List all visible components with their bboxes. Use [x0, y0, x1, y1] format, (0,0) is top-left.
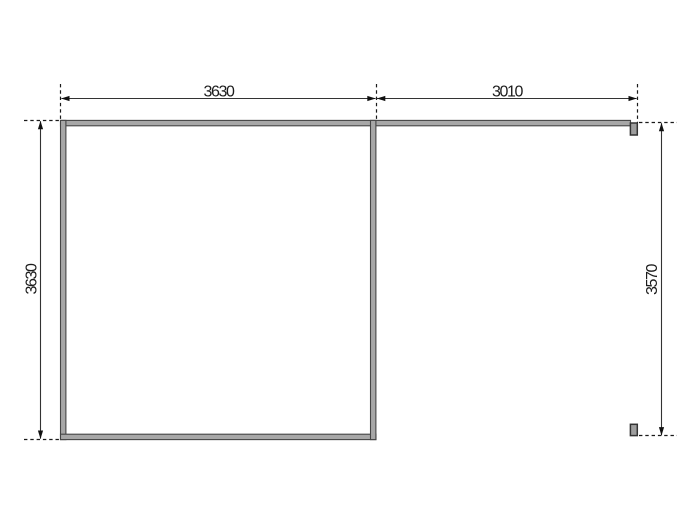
svg-text:3010: 3010	[492, 84, 523, 101]
svg-text:3630: 3630	[24, 263, 41, 294]
svg-text:3630: 3630	[204, 84, 235, 101]
svg-text:3570: 3570	[644, 264, 661, 295]
